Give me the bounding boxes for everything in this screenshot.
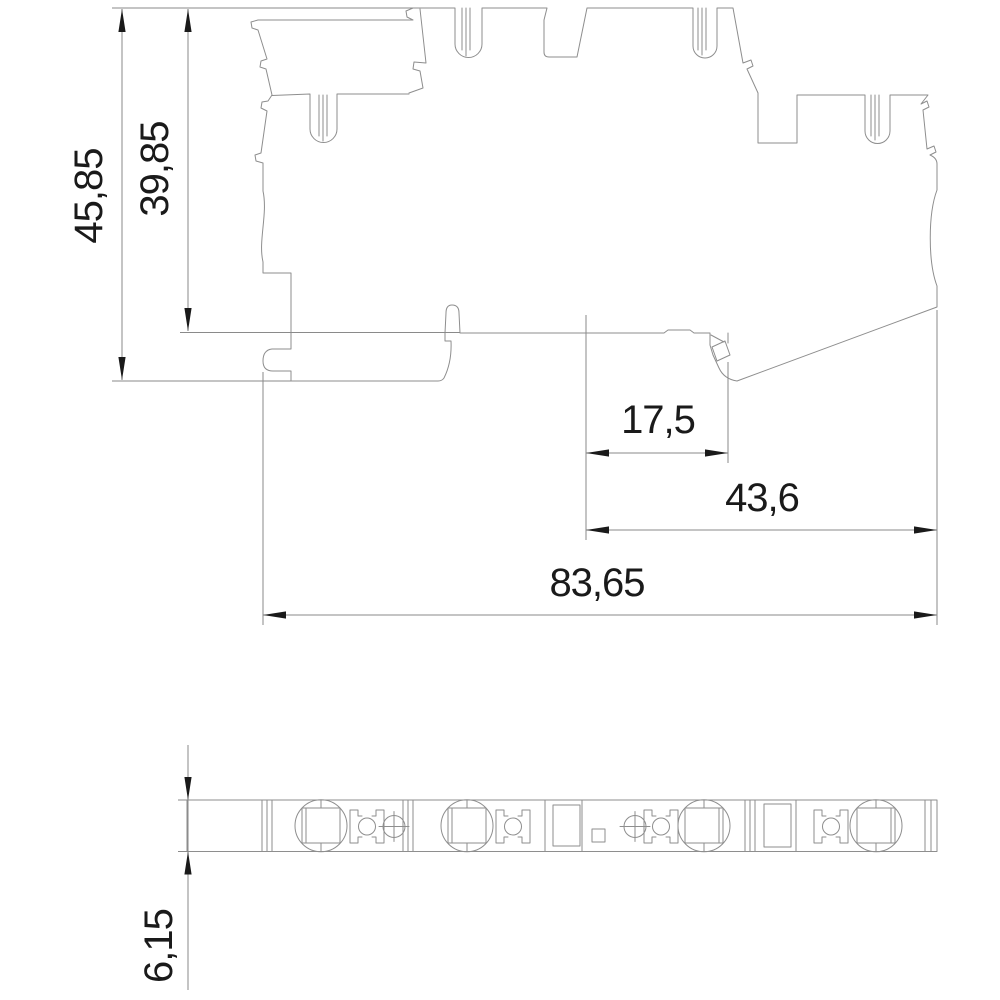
profile-outline <box>251 8 937 381</box>
dim-label-latch-offset: 17,5 <box>621 398 695 442</box>
rect-opening-2 <box>764 804 791 847</box>
extension-lines <box>112 8 937 852</box>
profile-inner-left-tier <box>272 9 426 143</box>
rect-opening-1 <box>553 805 580 846</box>
dim-label-right-section: 43,6 <box>725 476 799 520</box>
terminal-block-dimension-drawing: 45,85 39,85 17,5 43,6 83,65 6,15 <box>0 0 1000 1000</box>
strip-outline <box>187 800 937 852</box>
dim-label-base-thickness: 6,15 <box>137 909 181 983</box>
dim-label-body-height: 39,85 <box>133 121 177 216</box>
clamp-opening-2 <box>496 810 530 843</box>
dim-label-total-height: 45,85 <box>67 148 111 243</box>
technical-drawing-page: 45,85 39,85 17,5 43,6 83,65 6,15 <box>0 0 1000 1000</box>
side-view-profile <box>251 8 937 381</box>
test-point-2 <box>620 812 650 842</box>
slot-inner-lines <box>319 8 879 141</box>
terminal-screw-3 <box>678 800 730 852</box>
dim-label-total-width: 83,65 <box>549 561 644 605</box>
terminal-screw-1 <box>295 800 347 852</box>
dimension-arrowheads <box>118 9 937 875</box>
strip-dividers <box>262 800 931 852</box>
terminal-screw-2 <box>441 800 493 852</box>
terminal-screw-4 <box>850 800 902 852</box>
bottom-view-strip <box>187 800 937 852</box>
small-square-opening <box>592 829 605 842</box>
clamp-opening-4 <box>814 810 848 843</box>
